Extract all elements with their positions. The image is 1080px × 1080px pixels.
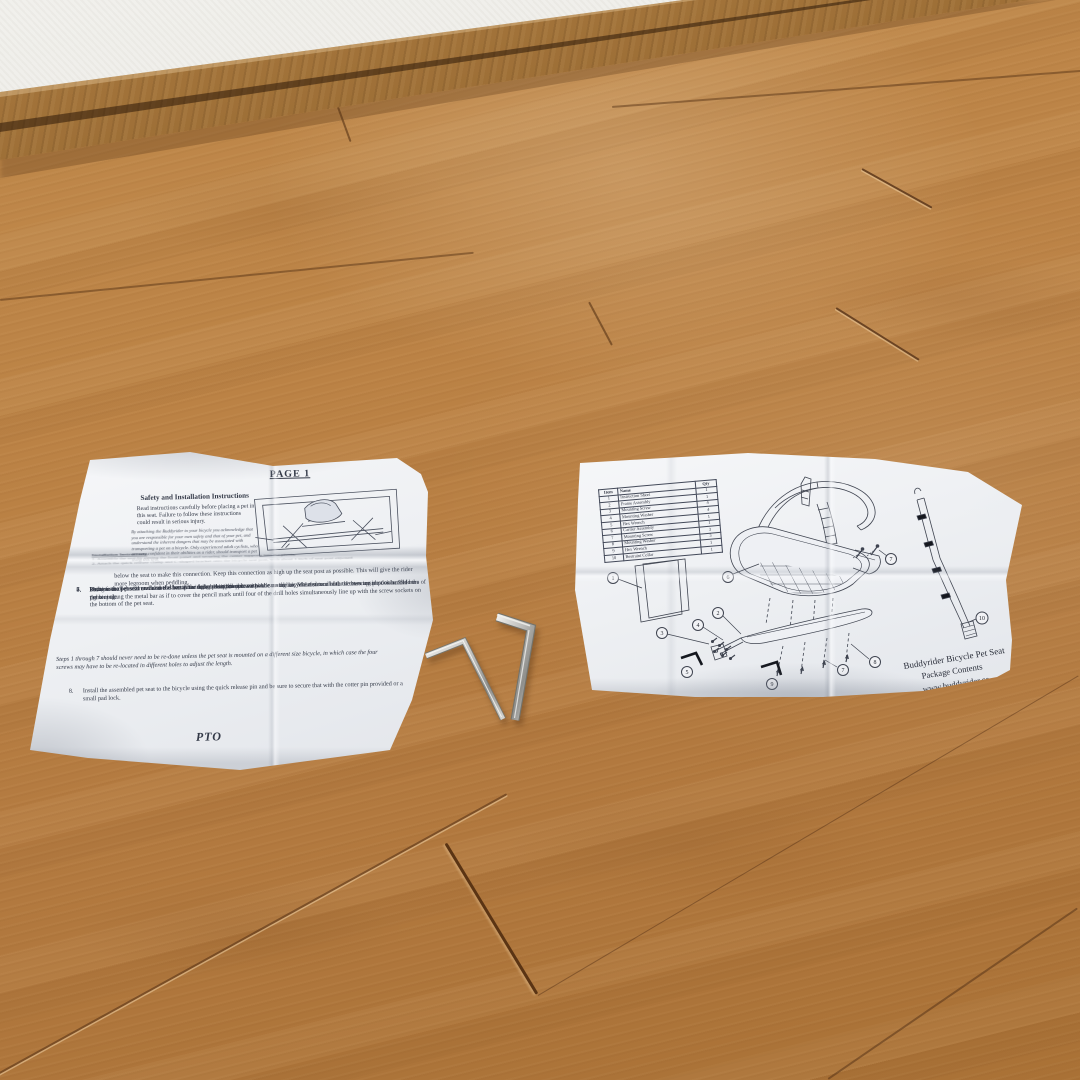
step-number: 7. (76, 586, 89, 601)
screw-washer-cluster (712, 638, 736, 660)
floor-plank-seam (0, 793, 507, 1076)
callout-number: 8 (874, 660, 877, 666)
callout-number: 3 (661, 631, 664, 637)
frame-assembly-drawing (915, 488, 977, 639)
floor-plank-seam (538, 675, 1079, 996)
callout-number: 2 (717, 611, 720, 617)
cell-item: 10 (604, 554, 624, 562)
hex-wrenches (400, 585, 590, 755)
pto-footer: PTO (196, 729, 222, 745)
callout-number: 7 (890, 557, 893, 563)
instruction-sheet-drawing (618, 559, 689, 622)
floor-plank-butt-joint (588, 302, 613, 346)
parts-table: Item Name Qty 1Instruction Sheet1 2Frame… (598, 479, 723, 563)
step-number: 8. (69, 687, 83, 703)
callout-number: 10 (979, 616, 985, 622)
left-sheet-content: PAGE 1 Safety and Installation Instructi… (21, 443, 443, 777)
callout-number: 6 (727, 575, 730, 581)
callout-number: 7 (842, 668, 845, 674)
intro-paragraph: Read instructions carefully before placi… (137, 503, 255, 527)
hex-wrench-large (497, 615, 531, 720)
photo-scene: PAGE 1 Safety and Installation Instructi… (0, 0, 1080, 1080)
hex-wrench-glyph (681, 653, 702, 665)
floor-plank-seam (828, 908, 1078, 1080)
callout-number: 1 (612, 576, 615, 582)
floor-plank-seam (612, 70, 1080, 108)
carrier-assembly-drawing (730, 477, 880, 598)
callout-number: 9 (771, 682, 774, 688)
floor-plank-butt-joint (835, 307, 919, 361)
cell-qty: 1 (701, 545, 722, 553)
floor-plank-butt-joint (862, 168, 933, 209)
floor-plank-butt-joint (445, 843, 538, 995)
hex-wrench-small (426, 641, 503, 720)
callout-number: 5 (686, 670, 689, 676)
callout-number: 4 (697, 623, 700, 629)
floor-plank-seam (0, 252, 474, 301)
package-contents-sheet: 1 6 7 2 3 4 5 9 7 8 10 Item Name Qty 1In… (565, 448, 1025, 700)
instruction-sheet-page1: PAGE 1 Safety and Installation Instructi… (25, 448, 440, 773)
